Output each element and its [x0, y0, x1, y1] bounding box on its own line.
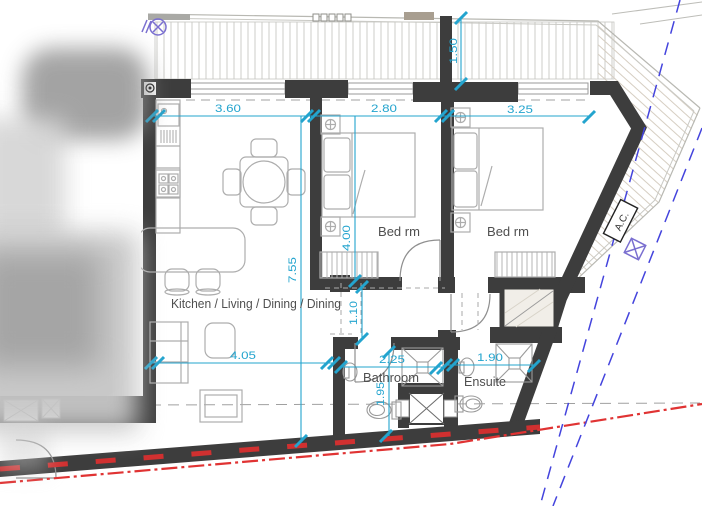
- dim-balcony-depth: 1.50: [448, 38, 460, 64]
- balcony-planter-boxes: [313, 14, 351, 21]
- floor-plan-drawing: A.C. 3.60 2.80 3.25 1.50 7.55 4.00: [0, 0, 702, 506]
- wall-top-kitchen-bed1: [285, 80, 348, 98]
- dim-corridor-width: 1.10: [348, 301, 360, 325]
- closet: [502, 287, 556, 329]
- label-bedroom-2: Bed rm: [487, 224, 529, 239]
- dim-ensuite-width: 1.90: [477, 352, 503, 364]
- balcony-planter: [404, 12, 434, 20]
- wardrobe: [495, 252, 555, 277]
- floor-plan-canvas: A.C. 3.60 2.80 3.25 1.50 7.55 4.00: [0, 0, 702, 506]
- dim-bathroom-length: 1.95: [375, 382, 387, 406]
- top-windows: [190, 83, 588, 94]
- label-bathroom: Bathroom: [363, 370, 419, 385]
- wardrobe: [320, 252, 378, 278]
- dim-bedroom1-length: 4.00: [341, 225, 353, 251]
- dim-living-width: 4.05: [230, 350, 256, 362]
- wall-top-bed2: [413, 82, 518, 102]
- bottom-windows: [4, 399, 60, 421]
- label-kitchen-living-dining: Kitchen / Living / Dining / Dining: [171, 296, 341, 311]
- wall-bathroom-left: [333, 337, 345, 437]
- dim-bedroom2-width: 3.25: [507, 104, 533, 116]
- dim-living-length: 7.55: [287, 257, 299, 283]
- label-ensuite: Ensuite: [464, 374, 506, 389]
- label-bedroom-1: Bed rm: [378, 224, 420, 239]
- dim-bathroom-width: 2.25: [379, 354, 405, 366]
- dim-kitchen-width: 3.60: [215, 103, 241, 115]
- column-symbol: [144, 82, 156, 95]
- dim-bedroom1-width: 2.80: [371, 103, 397, 115]
